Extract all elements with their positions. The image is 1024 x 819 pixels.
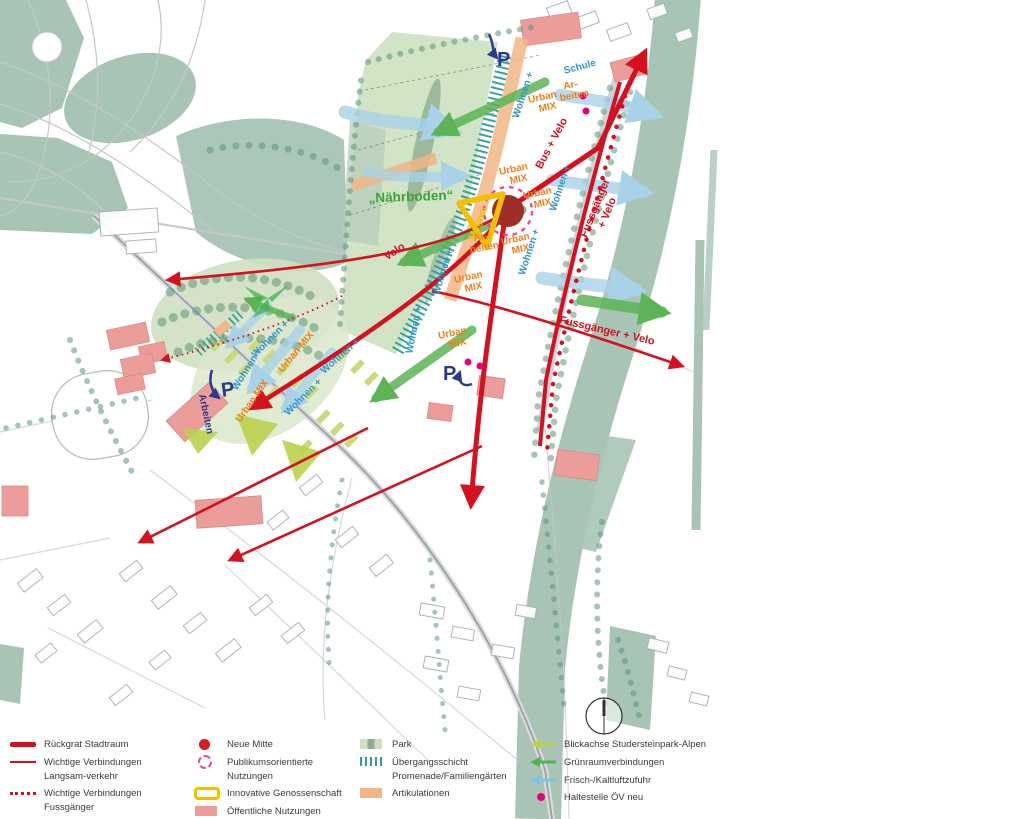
legend-column-flaechen: Park Übergangsschicht Promenade/Familien… (358, 738, 526, 805)
dashed-circle-swatch (198, 755, 212, 769)
label-naehrboden: „Nährboden“ (368, 188, 453, 206)
legend-label: Neue Mitte (227, 738, 273, 752)
legend-label: Frisch-/Kaltluftzufuhr (564, 774, 651, 788)
park-swatch (360, 739, 382, 749)
legend-item-genossenschaft: Innovative Genossenschaft (193, 787, 361, 801)
parking-symbol: P (443, 363, 456, 385)
legend-label: Innovative Genossenschaft (227, 787, 342, 801)
legend: Rückgrat Stadtraum Wichtige Verbindungen… (0, 738, 1024, 819)
svg-text:MIX: MIX (464, 280, 484, 295)
thick-red-line-swatch (10, 742, 36, 747)
legend-label: Publikumsorientierte Nutzungen (227, 756, 361, 784)
legend-label: Artikulationen (392, 787, 450, 801)
thin-red-line-swatch (10, 761, 36, 764)
map-canvas: „Nährboden“ Magnet Velo Bus + Velo Fussg… (0, 0, 1024, 819)
blue-arrow-swatch (530, 775, 558, 785)
legend-label: Wichtige Verbindungen Fussgänger (44, 787, 164, 815)
label-bus-velo: Bus + Velo (533, 116, 570, 171)
yellow-outline-swatch (194, 787, 220, 800)
label-urban-mix: UrbanMIX (527, 89, 560, 117)
label-urban-mix: UrbanMIX (498, 161, 531, 189)
legend-label: Blickachse Studersteinpark-Alpen (564, 738, 706, 752)
legend-item-gruenraum: Grünraumverbindungen (530, 756, 710, 770)
legend-item-oeffentlich: Öffentliche Nutzungen (193, 805, 361, 819)
legend-label: Wichtige Verbindungen Langsam-verkehr (44, 756, 172, 784)
red-dot-swatch (199, 739, 210, 750)
teal-hatch-swatch (360, 757, 382, 766)
yellowgreen-arrow-swatch (530, 739, 558, 749)
parking-symbol: P (497, 49, 510, 71)
legend-label: Rückgrat Stadtraum (44, 738, 169, 752)
legend-column-nutzungen: Neue Mitte Publikumsorientierte Nutzunge… (193, 738, 361, 819)
legend-item-blickachse: Blickachse Studersteinpark-Alpen (530, 738, 710, 752)
legend-item-park: Park (358, 738, 526, 752)
legend-item-publikum: Publikumsorientierte Nutzungen (193, 756, 361, 784)
north-compass (586, 698, 622, 734)
legend-item-fussgaenger: Wichtige Verbindungen Fussgänger (10, 787, 172, 815)
salmon-rect-swatch (195, 806, 217, 816)
green-arrow-swatch (530, 757, 558, 767)
legend-label: Grünraumverbindungen (564, 756, 664, 770)
legend-label: Öffentliche Nutzungen (227, 805, 321, 819)
legend-item-uebergang: Übergangsschicht Promenade/Familiengärte… (358, 756, 526, 784)
legend-item-haltestelle: Haltestelle ÖV neu (530, 791, 710, 805)
legend-label: Haltestelle ÖV neu (564, 791, 643, 805)
label-schule: Schule (563, 58, 598, 77)
dotted-red-line-swatch (10, 792, 36, 795)
orange-rect-swatch (360, 788, 382, 798)
svg-text:MIX: MIX (448, 336, 468, 351)
legend-item-artikulationen: Artikulationen (358, 787, 526, 801)
legend-item-rueckgrat: Rückgrat Stadtraum (10, 738, 172, 752)
svg-text:MIX: MIX (509, 172, 529, 187)
urban-plan-map: „Nährboden“ Magnet Velo Bus + Velo Fussg… (0, 0, 1024, 819)
legend-label: Park (392, 738, 412, 752)
legend-item-frischluft: Frisch-/Kaltluftzufuhr (530, 774, 710, 788)
legend-item-neue-mitte: Neue Mitte (193, 738, 361, 752)
legend-column-lines: Rückgrat Stadtraum Wichtige Verbindungen… (10, 738, 172, 819)
legend-column-verbindungen: Blickachse Studersteinpark-Alpen Grünrau… (530, 738, 710, 809)
svg-text:MIX: MIX (538, 100, 558, 115)
legend-item-langsamverkehr: Wichtige Verbindungen Langsam-verkehr (10, 756, 172, 784)
magenta-dot-swatch (537, 793, 545, 801)
legend-label: Übergangsschicht Promenade/Familiengärte… (392, 756, 526, 784)
